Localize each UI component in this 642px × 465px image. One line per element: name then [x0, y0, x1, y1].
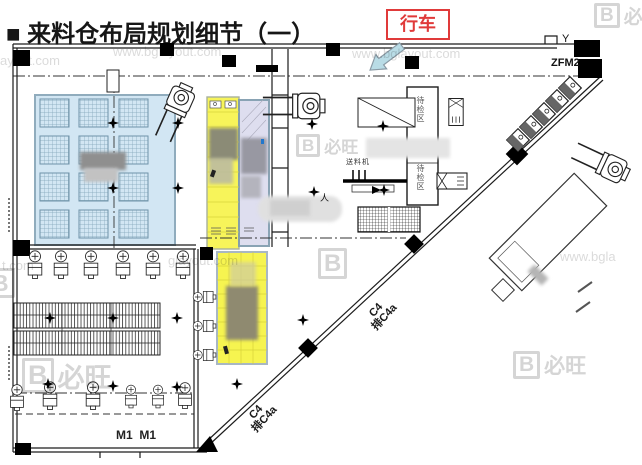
cart-icon-lower: [437, 173, 467, 189]
floor-plan-drawing: [0, 0, 642, 465]
watermark-brand-logo: B 必旺: [594, 2, 642, 29]
feeder-machine-label: 送料机: [346, 157, 370, 167]
censored-blob: [209, 128, 238, 160]
watermark-url: www.bglayout.com: [113, 44, 221, 59]
brand-name: 必旺: [58, 356, 112, 395]
machine-row-top: [28, 251, 190, 279]
machine-column-right: [193, 291, 216, 360]
dock-truck: [489, 173, 606, 312]
room-label-a: 待检区: [415, 96, 426, 136]
watermark-url: ayout.com: [0, 53, 60, 68]
brand-initial: B: [296, 134, 320, 158]
long-racks: [14, 303, 160, 355]
door-opening: [107, 70, 119, 92]
room-label-b: 待检区: [415, 164, 426, 204]
censored-blob: [241, 176, 261, 198]
censored-blob: [366, 138, 450, 158]
ink-mark: [261, 139, 264, 144]
staging-area-box: [358, 98, 415, 127]
watermark-brand-logo: B 必旺: [513, 350, 586, 380]
watermark-url: www.bglayout.com: [352, 46, 460, 61]
watermark-brand-logo: B 必旺: [296, 133, 358, 158]
brand-initial: B: [0, 268, 15, 298]
brand-name: 必旺: [544, 350, 586, 380]
brand-initial: B: [513, 351, 540, 379]
watermark-brand-logo: B: [318, 248, 347, 279]
door-label-zfm2: ZFM2: [551, 57, 580, 69]
workstation-squares: [507, 77, 582, 152]
censored-blob: [270, 200, 310, 216]
watermark-url: glayout.com: [168, 253, 238, 268]
censored-blob: [226, 286, 258, 340]
person-mark: 人: [320, 191, 329, 204]
brand-initial: B: [22, 358, 54, 392]
brand-initial: B: [318, 248, 347, 279]
watermark-url: www.bgla: [560, 249, 616, 264]
slide-canvas: www.bglayout.com www.bglayout.com ayout.…: [0, 0, 642, 465]
pallet-stack-block: [358, 207, 420, 232]
watermark-brand-logo: B: [0, 268, 15, 298]
cart-icon-upper: [449, 99, 463, 126]
brand-name: 必旺: [324, 133, 358, 158]
brand-name: 必旺: [624, 2, 642, 29]
crane-callout-label: 行车: [386, 9, 450, 40]
wall-symbol-y: Y: [562, 33, 569, 45]
censored-blob: [84, 168, 118, 182]
watermark-brand-logo: B 必旺: [22, 356, 112, 395]
floor-label-m1: M1 M1: [116, 428, 156, 442]
brand-initial: B: [594, 3, 620, 29]
feeder-conveyor: [343, 170, 407, 194]
